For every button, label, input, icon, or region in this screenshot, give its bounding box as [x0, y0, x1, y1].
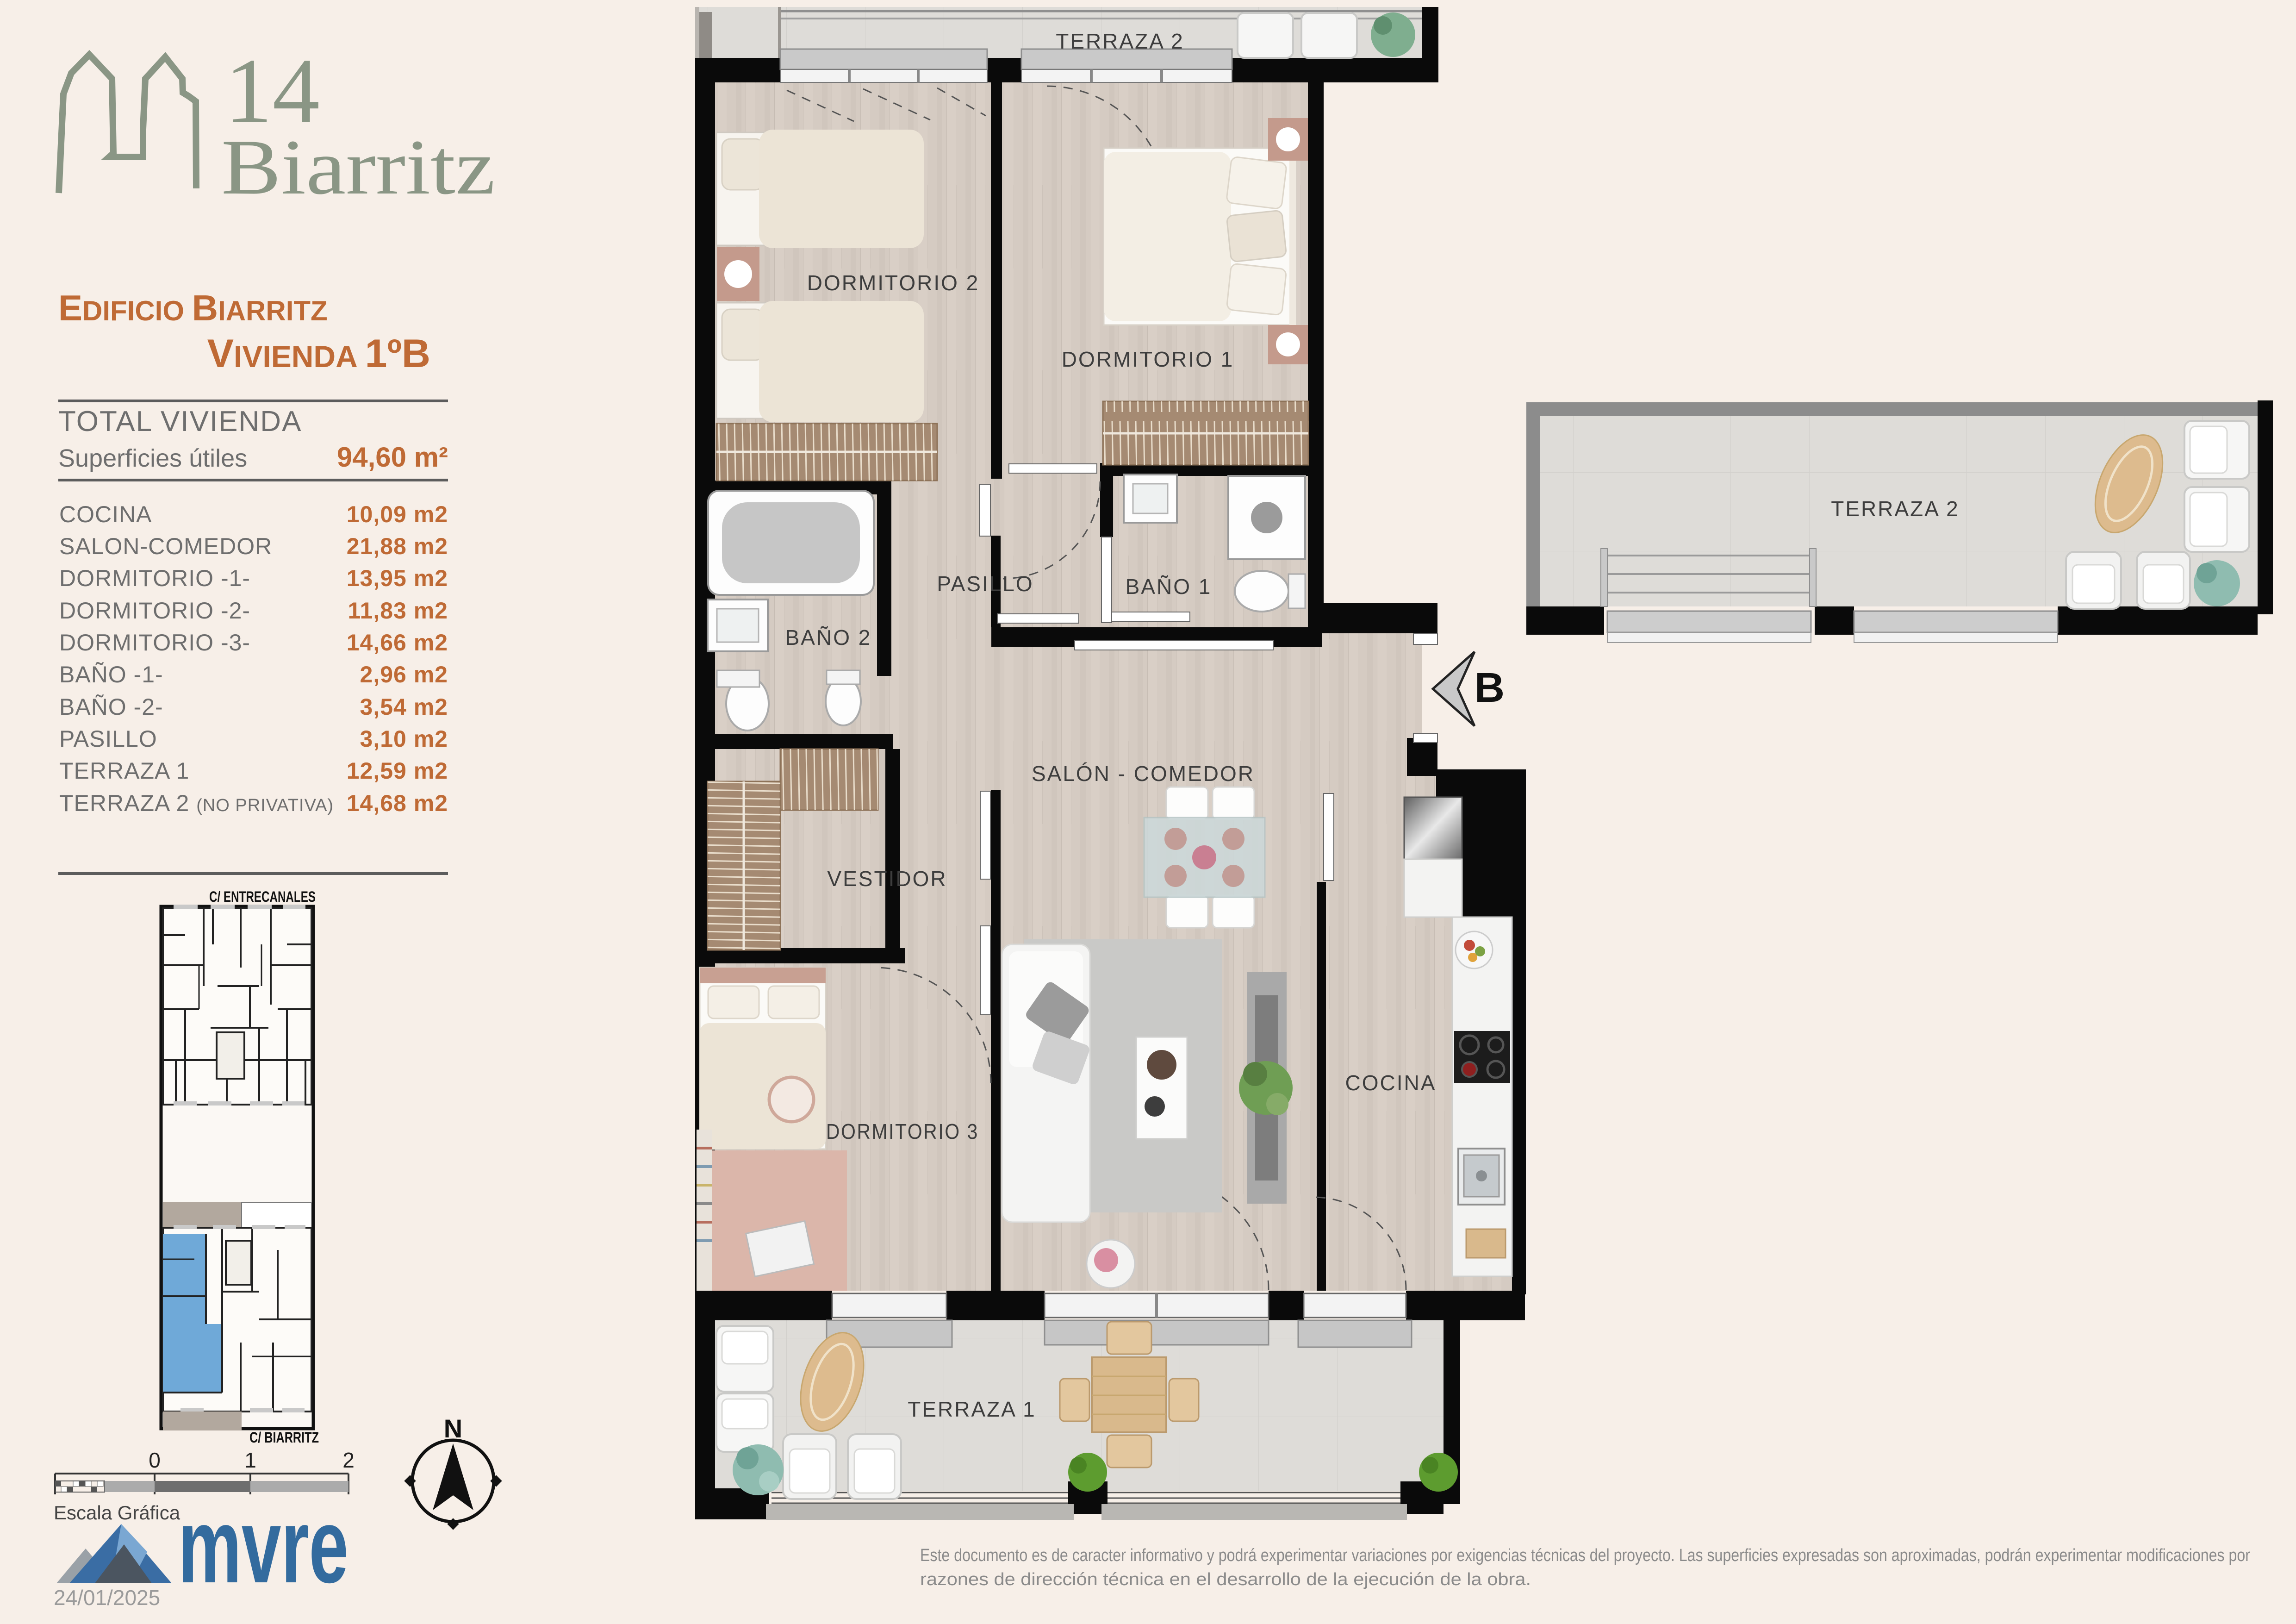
- svg-text:Este documento es de caracter: Este documento es de caracter informativ…: [920, 1546, 2250, 1565]
- svg-text:TERRAZA 1: TERRAZA 1: [59, 758, 189, 784]
- svg-text:3,54 m2: 3,54 m2: [360, 694, 448, 720]
- svg-text:TERRAZA 1: TERRAZA 1: [908, 1397, 1036, 1421]
- svg-text:mvre: mvre: [178, 1486, 348, 1605]
- svg-text:2,96 m2: 2,96 m2: [360, 662, 448, 687]
- svg-text:21,88 m2: 21,88 m2: [347, 533, 448, 559]
- svg-text:TERRAZA 2: TERRAZA 2: [1056, 29, 1184, 53]
- svg-text:C/ BIARRITZ: C/ BIARRITZ: [249, 1429, 319, 1446]
- svg-text:TERRAZA 2: TERRAZA 2: [1831, 497, 1960, 521]
- svg-text:1: 1: [244, 1448, 256, 1472]
- svg-text:DORMITORIO 3: DORMITORIO 3: [826, 1119, 979, 1143]
- svg-text:COCINA: COCINA: [1345, 1071, 1437, 1095]
- svg-text:DORMITORIO -2-: DORMITORIO -2-: [59, 598, 250, 624]
- svg-text:DORMITORIO 2: DORMITORIO 2: [807, 271, 980, 295]
- svg-text:DORMITORIO 1: DORMITORIO 1: [1062, 347, 1234, 371]
- svg-text:0: 0: [149, 1448, 161, 1472]
- svg-text:PASILLO: PASILLO: [59, 726, 157, 752]
- svg-text:14,68 m2: 14,68 m2: [347, 790, 448, 816]
- svg-text:94,60 m²: 94,60 m²: [337, 442, 448, 473]
- svg-text:B: B: [1475, 665, 1505, 711]
- svg-text:SALÓN - COMEDOR: SALÓN - COMEDOR: [1032, 762, 1255, 786]
- svg-text:3,10 m2: 3,10 m2: [360, 726, 448, 752]
- svg-text:DORMITORIO -3-: DORMITORIO -3-: [59, 630, 250, 656]
- svg-text:COCINA: COCINA: [59, 501, 152, 527]
- svg-text:SALON-COMEDOR: SALON-COMEDOR: [59, 533, 272, 559]
- svg-text:12,59 m2: 12,59 m2: [347, 758, 448, 784]
- svg-text:Escala Gráfica: Escala Gráfica: [54, 1502, 180, 1524]
- svg-text:BAÑO -1-: BAÑO -1-: [59, 662, 163, 687]
- svg-text:11,83 m2: 11,83 m2: [348, 598, 448, 624]
- svg-text:Superficies útiles: Superficies útiles: [58, 444, 247, 472]
- svg-text:BAÑO -2-: BAÑO -2-: [59, 694, 163, 720]
- svg-text:BAÑO 2: BAÑO 2: [785, 625, 872, 650]
- svg-text:C/ ENTRECANALES: C/ ENTRECANALES: [209, 888, 316, 905]
- svg-text:BAÑO 1: BAÑO 1: [1126, 575, 1212, 599]
- svg-text:2: 2: [342, 1448, 355, 1472]
- svg-text:N: N: [444, 1414, 462, 1443]
- svg-text:DORMITORIO -1-: DORMITORIO -1-: [59, 565, 250, 591]
- svg-text:VESTIDOR: VESTIDOR: [827, 867, 947, 891]
- svg-text:TOTAL VIVIENDA: TOTAL VIVIENDA: [58, 406, 302, 437]
- svg-text:Biarritz: Biarritz: [221, 124, 495, 211]
- svg-text:razones de dirección técnica e: razones de dirección técnica en el desar…: [920, 1570, 1531, 1589]
- svg-text:10,09 m2: 10,09 m2: [347, 501, 448, 527]
- svg-text:14,66 m2: 14,66 m2: [347, 630, 448, 656]
- svg-text:24/01/2025: 24/01/2025: [54, 1586, 160, 1610]
- svg-text:PASILLO: PASILLO: [937, 572, 1033, 596]
- svg-text:13,95 m2: 13,95 m2: [347, 565, 448, 591]
